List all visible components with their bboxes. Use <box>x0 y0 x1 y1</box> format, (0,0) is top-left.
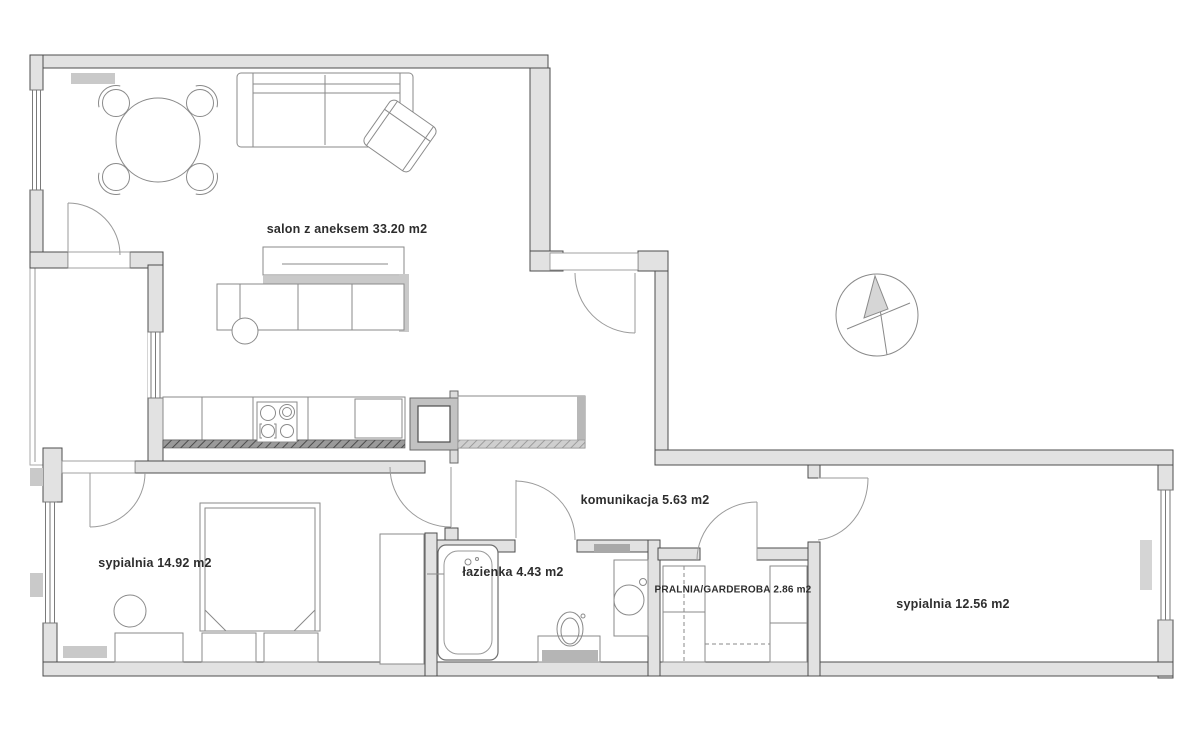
entrance-jamb-right <box>638 251 668 271</box>
bedroom2-window <box>1158 490 1173 620</box>
nightstand <box>202 633 256 662</box>
floor-plan-drawing <box>0 0 1200 745</box>
nightstand <box>264 633 318 662</box>
entrance-opening <box>550 253 638 270</box>
salon-window <box>30 90 43 190</box>
kitchen-window <box>148 332 163 398</box>
salon-top-wall <box>30 55 548 68</box>
salon-furniture <box>71 73 438 275</box>
shaft <box>410 398 458 450</box>
kitchen-west-wall-lower <box>148 398 163 470</box>
window-sill-mark-upper <box>30 468 43 486</box>
balcony-wall-left <box>30 252 68 268</box>
dining-table <box>116 98 200 182</box>
bedroom1-wardrobe <box>380 534 424 664</box>
pralnia-top-wall-left <box>658 548 700 560</box>
wardrobe-front-hatch <box>458 440 585 448</box>
room-label-pralnia-garderoba: PRALNIA/GARDEROBA 2.86 m2 <box>655 585 812 596</box>
washbasin-base <box>542 650 598 662</box>
tv-sideboard <box>263 247 404 275</box>
room-label-sypialnia-2: sypialnia 12.56 m2 <box>896 597 1009 611</box>
cooktop <box>257 402 297 442</box>
bathroom-fixtures <box>427 544 648 662</box>
corridor-fixtures <box>410 396 585 450</box>
balcony-door-arc <box>68 203 120 255</box>
bedroom1-right-wall <box>425 533 437 676</box>
bedroom2-right-wall-upper <box>1158 465 1173 490</box>
corridor-outer-wall <box>655 271 668 465</box>
stool <box>114 595 146 627</box>
bottom-wall <box>43 662 1173 676</box>
bathroom-door-arc <box>516 480 575 540</box>
bedroom2-door-arc <box>818 478 868 540</box>
room-label-sypialnia-1: sypialnia 14.92 m2 <box>98 556 211 570</box>
pralnia-top-wall-right <box>757 548 810 560</box>
vent-shaft-marker <box>594 544 630 553</box>
washbasin <box>538 612 600 662</box>
bedroom1-radiator <box>63 646 107 658</box>
bedroom1-balcony-door-opening <box>62 461 135 473</box>
bathroom-door-jamb <box>445 528 458 540</box>
laundry-shelving-right <box>770 566 807 662</box>
island-back-panel <box>263 276 408 284</box>
fridge <box>355 399 402 438</box>
bedroom1-balcony-door-arc <box>90 473 145 527</box>
balcony-door-opening <box>68 252 130 268</box>
pralnia-door-arc <box>697 502 757 560</box>
room-label-komunikacja: komunikacja 5.63 m2 <box>581 493 710 507</box>
laundry-shelving-left <box>663 566 705 662</box>
kitchen <box>163 274 409 448</box>
door-swings <box>68 203 868 560</box>
window-sill-mark-lower <box>30 573 43 597</box>
balcony-outline <box>30 255 148 465</box>
bed <box>200 503 320 631</box>
room-label-lazienka: łazienka 4.43 m2 <box>462 565 563 579</box>
bedroom2-radiator <box>1140 540 1152 590</box>
entrance-door-arc <box>575 273 635 333</box>
bedroom1-door-arc <box>390 467 451 527</box>
bedroom1-furniture <box>63 503 424 664</box>
laundry-fixtures <box>663 566 807 662</box>
salon-west-wall-upper <box>30 55 43 90</box>
corridor-wardrobe <box>458 396 585 448</box>
bedroom2-left-wall-lower <box>808 542 820 676</box>
floor-plan-page: salon z aneksem 33.20 m2 komunikacja 5.6… <box>0 0 1200 745</box>
dresser <box>115 633 183 662</box>
bathtub <box>427 545 498 660</box>
kitchen-west-wall-upper <box>148 265 163 332</box>
bedroom2-left-wall-upper <box>808 465 820 478</box>
bedroom2-top-wall <box>655 450 1173 465</box>
north-arrow-compass-icon <box>836 274 918 356</box>
room-label-salon: salon z aneksem 33.20 m2 <box>267 222 427 236</box>
bedroom1-top-wall <box>135 461 425 473</box>
salon-right-wall <box>530 68 550 253</box>
bedroom1-window <box>43 502 57 623</box>
island-stool <box>232 318 258 344</box>
salon-radiator <box>71 73 115 84</box>
washing-machine <box>614 560 648 636</box>
bedroom1-west-wall-upper <box>43 448 62 502</box>
